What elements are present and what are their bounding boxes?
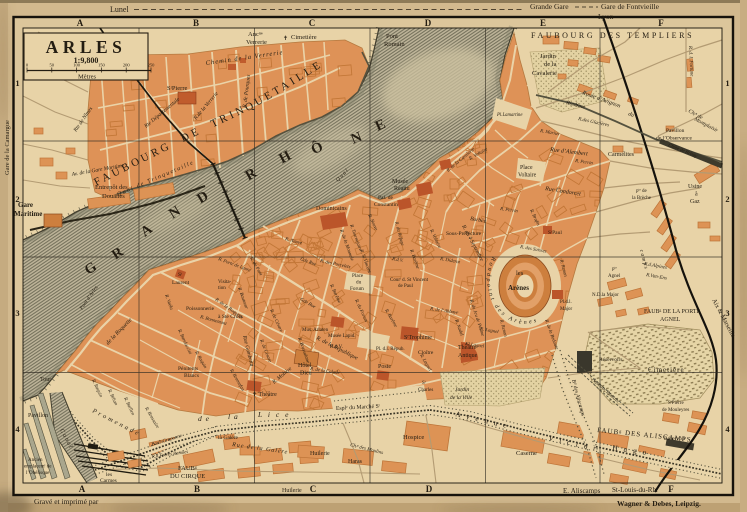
svg-text:Tour: Tour bbox=[40, 377, 51, 383]
svg-text:150: 150 bbox=[98, 63, 106, 68]
svg-text:de l’Observance: de l’Observance bbox=[656, 136, 692, 142]
svg-text:Sᵗ: Sᵗ bbox=[422, 381, 426, 386]
svg-text:F: F bbox=[658, 18, 664, 28]
svg-text:E. Aliscamps: E. Aliscamps bbox=[563, 487, 601, 495]
svg-text:Laurent: Laurent bbox=[172, 280, 190, 286]
svg-text:de la: de la bbox=[544, 61, 557, 68]
svg-text:Usine: Usine bbox=[688, 184, 702, 190]
svg-text:FAUBᵍ: FAUBᵍ bbox=[178, 465, 197, 472]
svg-text:Pavillon: Pavillon bbox=[28, 413, 48, 419]
svg-text:Cimetière: Cimetière bbox=[648, 366, 685, 374]
svg-text:à: à bbox=[695, 192, 698, 198]
svg-text:emplacemᵗ de: emplacemᵗ de bbox=[24, 465, 52, 470]
svg-text:Constantin: Constantin bbox=[374, 202, 398, 208]
svg-text:Entrepôt des: Entrepôt des bbox=[95, 184, 128, 191]
svg-text:St-Louis-du-Rh.: St-Louis-du-Rh. bbox=[612, 486, 658, 494]
svg-text:Réservoir: Réservoir bbox=[664, 436, 686, 442]
svg-text:Voltaire: Voltaire bbox=[518, 173, 537, 179]
svg-text:les: les bbox=[516, 270, 524, 277]
svg-text:de Paul: de Paul bbox=[398, 284, 413, 289]
svg-text:Wagner & Debes, Leipzig.: Wagner & Debes, Leipzig. bbox=[617, 499, 701, 508]
svg-text:l a: l a bbox=[228, 412, 239, 421]
svg-text:N.D.la Major: N.D.la Major bbox=[592, 293, 619, 298]
svg-text:Place: Place bbox=[520, 165, 533, 171]
svg-text:SᵗPierre: SᵗPierre bbox=[668, 401, 684, 406]
svg-text:Poissonnerie: Poissonnerie bbox=[186, 306, 215, 312]
svg-text:50: 50 bbox=[50, 63, 55, 68]
svg-text:tion: tion bbox=[218, 286, 226, 291]
svg-text:Gare: Gare bbox=[18, 201, 33, 209]
svg-text:C: C bbox=[310, 484, 317, 494]
svg-text:Visita-: Visita- bbox=[218, 280, 232, 285]
svg-text:Réservoirs: Réservoirs bbox=[599, 357, 623, 363]
svg-text:C: C bbox=[309, 18, 316, 28]
svg-text:ARLES: ARLES bbox=[46, 37, 127, 57]
svg-text:Pénitents: Pénitents bbox=[178, 366, 198, 372]
svg-text:A: A bbox=[79, 484, 86, 494]
svg-text:Pavillon: Pavillon bbox=[666, 128, 685, 134]
svg-text:d e: d e bbox=[198, 414, 210, 423]
svg-text:A: A bbox=[77, 18, 84, 28]
svg-text:Gravé et imprimé par: Gravé et imprimé par bbox=[34, 497, 99, 506]
svg-text:Pal. de: Pal. de bbox=[378, 195, 394, 201]
svg-text:de la Ville: de la Ville bbox=[450, 395, 473, 401]
svg-text:FAUBᵍ DE LA PORTE: FAUBᵍ DE LA PORTE bbox=[644, 309, 701, 315]
svg-text:Place: Place bbox=[352, 273, 364, 279]
svg-text:SᵗPaul: SᵗPaul bbox=[548, 230, 562, 236]
svg-text:Pl.d.l.: Pl.d.l. bbox=[560, 300, 572, 305]
svg-text:Ancⁿᵉ: Ancⁿᵉ bbox=[248, 31, 263, 38]
svg-text:Huilerie: Huilerie bbox=[310, 451, 330, 457]
svg-text:Agnel: Agnel bbox=[608, 274, 621, 279]
svg-text:250: 250 bbox=[148, 63, 156, 68]
svg-text:Sᵗ: Sᵗ bbox=[178, 272, 182, 278]
svg-text:Grande Gare: Grande Gare bbox=[530, 2, 569, 11]
svg-text:✝: ✝ bbox=[283, 35, 288, 42]
svg-text:Mètres: Mètres bbox=[78, 74, 97, 81]
svg-text:pᵗᵉ: pᵗᵉ bbox=[612, 267, 617, 272]
svg-text:Lunel: Lunel bbox=[110, 5, 129, 14]
svg-text:Courⁱ d. St Vincent: Courⁱ d. St Vincent bbox=[390, 276, 429, 283]
svg-text:Réattu: Réattu bbox=[394, 186, 410, 192]
svg-text:Jardin: Jardin bbox=[540, 53, 557, 60]
svg-text:Charles: Charles bbox=[418, 388, 433, 393]
svg-text:Lyon: Lyon bbox=[598, 12, 614, 21]
svg-text:B: B bbox=[193, 18, 199, 28]
svg-text:la Brèche: la Brèche bbox=[632, 196, 652, 201]
svg-text:Caserne: Caserne bbox=[516, 450, 537, 457]
svg-text:Blancs: Blancs bbox=[184, 373, 199, 379]
svg-text:Pl.Lamartine: Pl.Lamartine bbox=[496, 113, 523, 118]
svg-text:F: F bbox=[668, 484, 674, 494]
svg-text:Antique: Antique bbox=[458, 353, 478, 359]
svg-text:Forum: Forum bbox=[350, 286, 364, 292]
svg-text:D: D bbox=[426, 484, 433, 494]
svg-text:AGNEL: AGNEL bbox=[660, 317, 681, 323]
svg-text:Haras: Haras bbox=[348, 459, 363, 465]
svg-text:3: 3 bbox=[15, 308, 19, 318]
svg-text:du: du bbox=[356, 280, 362, 286]
svg-text:Hospice: Hospice bbox=[403, 434, 424, 441]
svg-text:Arènes: Arènes bbox=[508, 284, 529, 292]
svg-text:D: D bbox=[425, 18, 432, 28]
svg-text:2: 2 bbox=[725, 194, 729, 204]
svg-text:L i c e: L i c e bbox=[257, 410, 290, 419]
svg-text:Gare de la Camargue: Gare de la Camargue bbox=[4, 120, 11, 175]
svg-text:Dominicains: Dominicains bbox=[316, 206, 347, 212]
svg-text:Maritime: Maritime bbox=[14, 210, 42, 218]
svg-text:Gaz: Gaz bbox=[690, 199, 700, 205]
svg-text:DU CIRQUE: DU CIRQUE bbox=[170, 473, 205, 480]
svg-text:B: B bbox=[194, 484, 200, 494]
svg-text:Carmélites: Carmélites bbox=[608, 152, 635, 158]
svg-text:200: 200 bbox=[123, 63, 131, 68]
svg-text:pᵗᵉ de: pᵗᵉ de bbox=[636, 189, 647, 194]
svg-text:Pl. d.l. Répub.: Pl. d.l. Répub. bbox=[376, 347, 405, 352]
svg-text:Cimetière: Cimetière bbox=[291, 34, 317, 41]
svg-text:Huilerie: Huilerie bbox=[282, 488, 302, 494]
svg-text:1: 1 bbox=[15, 78, 19, 88]
svg-text:Mus. Arlaten: Mus. Arlaten bbox=[302, 328, 329, 333]
svg-text:SᵗPierre: SᵗPierre bbox=[167, 85, 187, 92]
svg-text:la Galère: la Galère bbox=[218, 435, 239, 441]
svg-text:Romain: Romain bbox=[384, 41, 405, 48]
svg-text:Gare de Fontvieille: Gare de Fontvieille bbox=[601, 2, 660, 11]
svg-text:l’Obélisque: l’Obélisque bbox=[26, 471, 50, 476]
svg-text:Jardin: Jardin bbox=[455, 387, 469, 393]
svg-text:✝ Théâtre: ✝ Théâtre bbox=[252, 391, 277, 398]
svg-text:Major: Major bbox=[560, 307, 573, 312]
svg-text:SᵗTrophime: SᵗTrophime bbox=[404, 335, 432, 341]
svg-text:Carmes: Carmes bbox=[100, 478, 117, 484]
svg-text:Pont: Pont bbox=[386, 33, 398, 40]
svg-text:Cavalerie: Cavalerie bbox=[532, 70, 557, 77]
svg-text:Poste: Poste bbox=[378, 364, 391, 370]
svg-text:Douanes: Douanes bbox=[102, 193, 125, 200]
svg-text:FAUBOURG DES TEMPLIERS: FAUBOURG DES TEMPLIERS bbox=[531, 31, 694, 40]
svg-text:100: 100 bbox=[73, 63, 81, 68]
svg-text:de Mouleyres: de Mouleyres bbox=[662, 408, 689, 413]
svg-text:Ancien: Ancien bbox=[28, 458, 43, 463]
svg-text:1: 1 bbox=[725, 78, 729, 88]
svg-text:Verrerie: Verrerie bbox=[246, 39, 267, 46]
svg-text:E: E bbox=[540, 18, 546, 28]
svg-text:H.d.V.: H.d.V. bbox=[330, 345, 343, 350]
svg-text:Musée Lapid.: Musée Lapid. bbox=[328, 334, 356, 339]
svg-text:Musée: Musée bbox=[392, 179, 408, 185]
